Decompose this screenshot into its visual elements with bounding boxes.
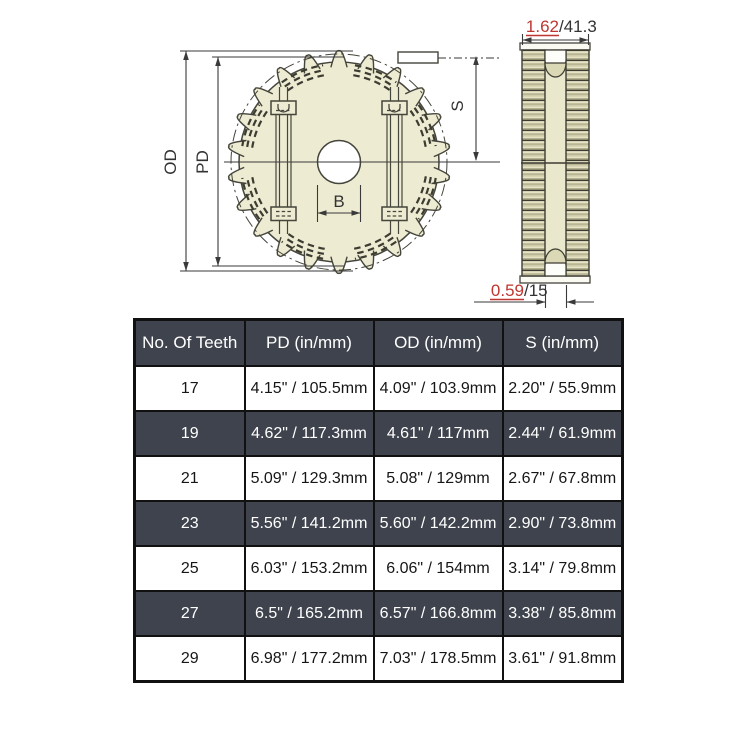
table-row: 25 6.03" / 153.2mm 6.06" / 154mm 3.14" /… — [135, 546, 623, 591]
table-row: 17 4.15" / 105.5mm 4.09" / 103.9mm 2.20"… — [135, 366, 623, 411]
column-header-teeth: No. Of Teeth — [135, 320, 245, 367]
cell-pd: 4.62" / 117.3mm — [245, 411, 374, 456]
table-row: 27 6.5" / 165.2mm 6.57" / 166.8mm 3.38" … — [135, 591, 623, 636]
cell-od: 4.61" / 117mm — [374, 411, 503, 456]
cell-teeth: 17 — [135, 366, 245, 411]
chain-plate — [398, 52, 438, 63]
cell-pd: 6.5" / 165.2mm — [245, 591, 374, 636]
technical-drawing: OD PD B S — [0, 0, 750, 312]
cell-s: 3.61" / 91.8mm — [503, 636, 623, 682]
table-row: 29 6.98" / 177.2mm 7.03" / 178.5mm 3.61"… — [135, 636, 623, 682]
cell-s: 3.38" / 85.8mm — [503, 591, 623, 636]
cell-pd: 6.98" / 177.2mm — [245, 636, 374, 682]
cell-od: 6.57" / 166.8mm — [374, 591, 503, 636]
table-row: 23 5.56" / 141.2mm 5.60" / 142.2mm 2.90"… — [135, 501, 623, 546]
spec-table: No. Of Teeth PD (in/mm) OD (in/mm) S (in… — [133, 318, 624, 683]
cell-pd: 5.09" / 129.3mm — [245, 456, 374, 501]
sprocket-front-view — [224, 51, 500, 274]
cell-od: 5.08" / 129mm — [374, 456, 503, 501]
pd-label: PD — [193, 150, 212, 174]
cell-od: 5.60" / 142.2mm — [374, 501, 503, 546]
cell-teeth: 25 — [135, 546, 245, 591]
cell-pd: 4.15" / 105.5mm — [245, 366, 374, 411]
cell-s: 2.67" / 67.8mm — [503, 456, 623, 501]
cell-teeth: 21 — [135, 456, 245, 501]
cell-s: 2.20" / 55.9mm — [503, 366, 623, 411]
side-width-dimension: 1.62 /41.3 — [523, 17, 597, 45]
sprocket-side-view — [520, 43, 590, 283]
cell-teeth: 23 — [135, 501, 245, 546]
side-width-inch: 1.62 — [526, 17, 559, 36]
cell-pd: 5.56" / 141.2mm — [245, 501, 374, 546]
groove-width-inch: 0.59 — [491, 281, 524, 300]
table-row: 19 4.62" / 117.3mm 4.61" / 117mm 2.44" /… — [135, 411, 623, 456]
cell-s: 3.14" / 79.8mm — [503, 546, 623, 591]
groove-width-mm: /15 — [524, 281, 548, 300]
bore-label: B — [333, 192, 344, 211]
header-row: No. Of Teeth PD (in/mm) OD (in/mm) S (in… — [135, 320, 623, 367]
cell-od: 4.09" / 103.9mm — [374, 366, 503, 411]
column-header-s: S (in/mm) — [503, 320, 623, 367]
groove-width-dimension: 0.59 /15 — [474, 281, 594, 308]
column-header-pd: PD (in/mm) — [245, 320, 374, 367]
column-header-od: OD (in/mm) — [374, 320, 503, 367]
cell-od: 7.03" / 178.5mm — [374, 636, 503, 682]
side-width-mm: /41.3 — [559, 17, 597, 36]
cell-pd: 6.03" / 153.2mm — [245, 546, 374, 591]
table-row: 21 5.09" / 129.3mm 5.08" / 129mm 2.67" /… — [135, 456, 623, 501]
page: { "drawing": { "front_view": { "od_label… — [0, 0, 750, 750]
od-label: OD — [161, 149, 180, 175]
cell-teeth: 27 — [135, 591, 245, 636]
cell-s: 2.90" / 73.8mm — [503, 501, 623, 546]
s-label: S — [448, 100, 467, 111]
cell-od: 6.06" / 154mm — [374, 546, 503, 591]
cell-s: 2.44" / 61.9mm — [503, 411, 623, 456]
cell-teeth: 29 — [135, 636, 245, 682]
cell-teeth: 19 — [135, 411, 245, 456]
